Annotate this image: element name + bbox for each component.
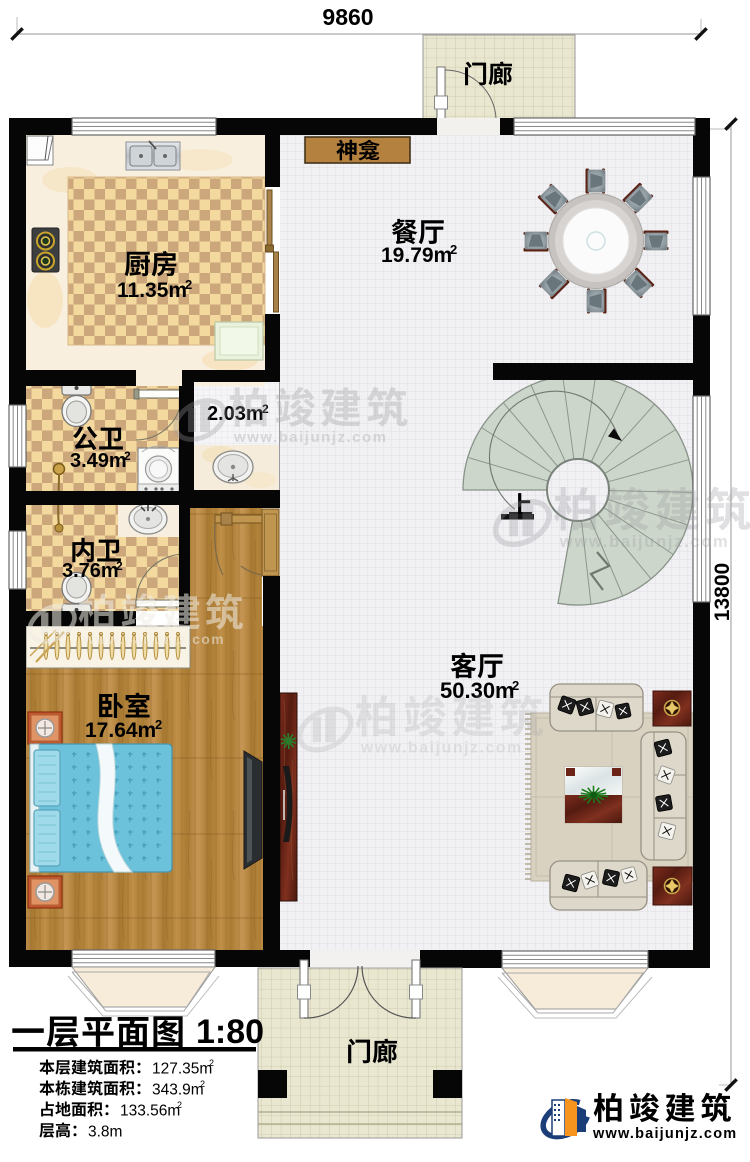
svg-text:2: 2 <box>155 717 162 732</box>
svg-text:19.79m: 19.79m <box>381 244 452 267</box>
svg-text:17.64m: 17.64m <box>85 719 156 742</box>
svg-text:127.35m: 127.35m <box>152 1061 212 1078</box>
svg-text:343.9m: 343.9m <box>152 1082 204 1099</box>
svg-text:2: 2 <box>209 1058 214 1068</box>
svg-text:3.76m: 3.76m <box>62 560 119 582</box>
svg-text:www.baijunjz.com: www.baijunjz.com <box>592 1126 737 1142</box>
svg-text:2: 2 <box>185 277 192 292</box>
svg-text:www.baijunjz.com: www.baijunjz.com <box>233 429 387 446</box>
svg-text:2: 2 <box>450 242 457 257</box>
svg-text:11.35m: 11.35m <box>117 279 187 302</box>
svg-text:1:80: 1:80 <box>196 1013 264 1051</box>
svg-text:www.baijunjz.com: www.baijunjz.com <box>360 740 523 757</box>
svg-text:2: 2 <box>200 1079 205 1089</box>
svg-text:3.49m: 3.49m <box>70 450 127 472</box>
svg-text:www.baijunjz.com: www.baijunjz.com <box>82 632 224 647</box>
svg-text:2: 2 <box>124 449 131 463</box>
svg-text:9860: 9860 <box>322 4 373 30</box>
svg-text:3.8m: 3.8m <box>88 1124 122 1141</box>
svg-text:2: 2 <box>177 1100 182 1110</box>
svg-text:13800: 13800 <box>711 563 734 621</box>
svg-text:www.baijunjz.com: www.baijunjz.com <box>559 533 730 551</box>
svg-text:2: 2 <box>512 678 519 693</box>
svg-text:133.56m: 133.56m <box>120 1103 180 1120</box>
svg-text:2: 2 <box>116 559 123 573</box>
